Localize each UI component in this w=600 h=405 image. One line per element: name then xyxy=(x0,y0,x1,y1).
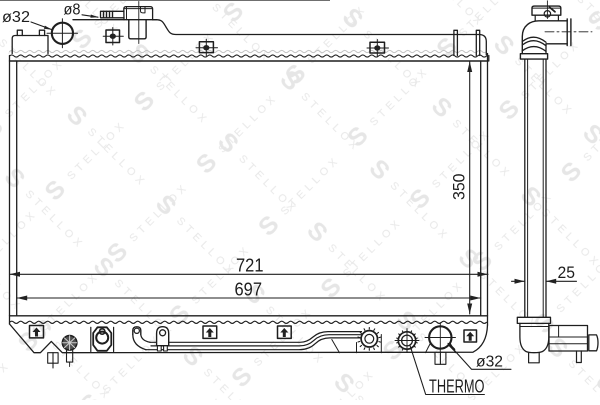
svg-text:697: 697 xyxy=(235,280,263,300)
svg-text:350: 350 xyxy=(450,174,469,201)
svg-text:ø32: ø32 xyxy=(2,9,30,26)
svg-text:ø8: ø8 xyxy=(64,2,81,19)
svg-text:THERMO: THERMO xyxy=(429,377,485,397)
svg-text:ø32: ø32 xyxy=(476,354,503,371)
svg-text:721: 721 xyxy=(236,256,264,276)
svg-text:25: 25 xyxy=(558,263,576,282)
